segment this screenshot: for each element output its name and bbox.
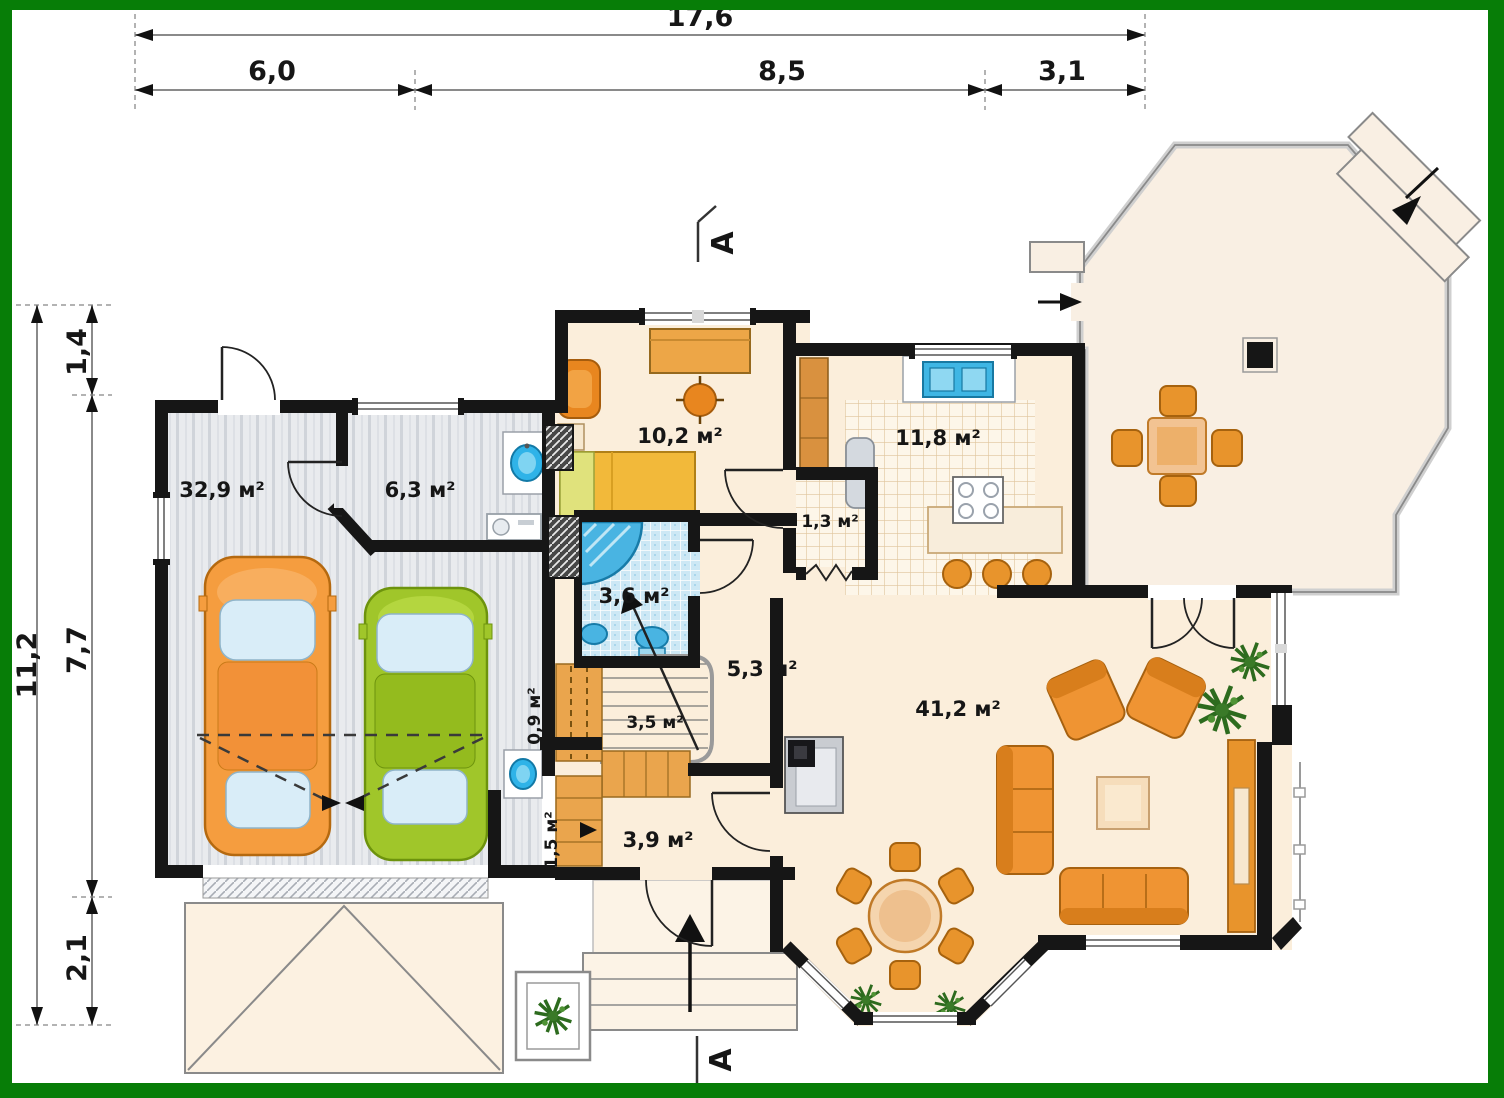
vestibule-steps <box>556 776 602 866</box>
dim-seg-7-7: 7,7 <box>62 626 93 674</box>
desk <box>650 329 750 373</box>
section-letter: A <box>706 231 741 255</box>
terrace <box>1030 113 1493 592</box>
sink <box>581 624 607 644</box>
section-marker-top: A <box>698 206 741 262</box>
label-vestibule: 1,5 м² <box>542 811 562 868</box>
section-marker-bottom: A <box>642 1036 739 1088</box>
label-hall: 5,3 м² <box>727 657 798 681</box>
bar-stool <box>983 560 1011 588</box>
washing-machine <box>487 514 541 540</box>
sofa-vertical <box>997 746 1053 874</box>
label-entry: 3,9 м² <box>623 828 694 852</box>
label-bathroom: 3,6 м² <box>599 584 670 608</box>
kitchen-window <box>909 344 1017 359</box>
garage-canopy-roof <box>185 903 503 1073</box>
side-terrace-edge <box>1294 762 1305 922</box>
porch-planter <box>516 972 590 1060</box>
car-green <box>359 588 492 860</box>
dim-total-height: 11,2 <box>12 632 43 699</box>
label-living: 41,2 м² <box>915 697 1001 721</box>
stove <box>953 477 1003 523</box>
label-garage: 32,9 м² <box>179 478 265 502</box>
label-study: 10,2 м² <box>637 424 723 448</box>
coffee-table-top <box>1105 785 1141 821</box>
dim-seg-2-1: 2,1 <box>62 934 93 982</box>
label-wc: 1,3 м² <box>801 512 858 532</box>
fireplace <box>785 737 843 813</box>
tall-cabinet <box>800 358 828 476</box>
bar-stool <box>1023 560 1051 588</box>
chimney-shaft <box>548 516 580 578</box>
bay-window-bottom <box>873 1012 957 1026</box>
living-bottom-window <box>1086 935 1180 950</box>
label-kitchen: 11,8 м² <box>895 426 981 450</box>
living-side-window <box>1271 593 1293 705</box>
dimension-top: 17,6 6,0 8,5 3,1 <box>135 2 1145 110</box>
dim-seg-1-4: 1,4 <box>62 328 93 376</box>
dim-seg-6-0: 6,0 <box>248 56 296 87</box>
wall-unit <box>1228 740 1255 932</box>
label-utility: 6,3 м² <box>385 478 456 502</box>
dimension-left: 11,2 1,4 7,7 2,1 <box>12 305 112 1025</box>
kitchen-sink <box>923 362 993 397</box>
sofa-horizontal <box>1060 868 1188 924</box>
terrace-column <box>1247 342 1273 368</box>
dim-seg-8-5: 8,5 <box>758 56 806 87</box>
floor-plan-page: 17,6 6,0 8,5 3,1 11,2 1,4 7,7 2,1 <box>0 0 1504 1098</box>
stairs-lower-flight <box>602 751 690 797</box>
dim-seg-3-1: 3,1 <box>1038 56 1086 87</box>
section-letter: A <box>704 1048 739 1072</box>
bar-stool <box>943 560 971 588</box>
garage-door-apron <box>203 878 488 898</box>
entrance-porch <box>516 880 797 1060</box>
label-closet: 0,9 м² <box>525 687 545 744</box>
garage-window <box>352 398 464 415</box>
toilet <box>636 627 668 657</box>
bed <box>560 452 695 516</box>
study-window <box>639 308 756 325</box>
floor-plan-drawing: 17,6 6,0 8,5 3,1 11,2 1,4 7,7 2,1 <box>0 0 1504 1098</box>
dim-total-width: 17,6 <box>667 2 734 33</box>
garage-side-window <box>153 492 170 565</box>
car-orange <box>199 557 336 855</box>
garage-side-door <box>218 347 280 415</box>
label-stairs: 3,5 м² <box>626 713 683 733</box>
corridor-sink <box>504 750 542 798</box>
chimney-shaft <box>545 425 573 470</box>
terrace-side-landing <box>1030 242 1084 272</box>
